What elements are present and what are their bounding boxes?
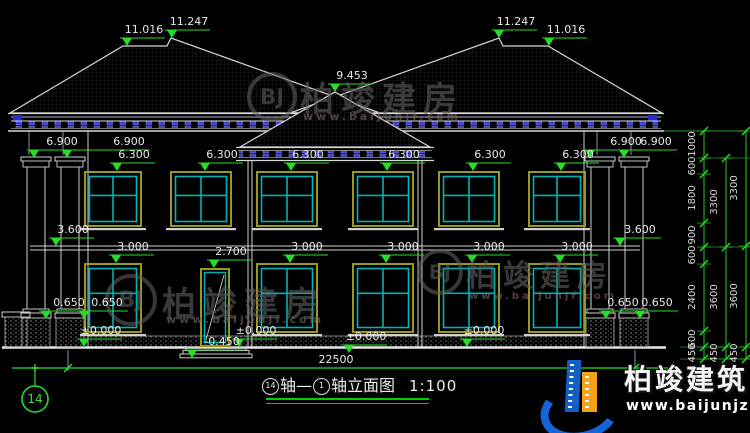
total-width-dimension: 22500: [319, 353, 354, 366]
title-underline-2: [266, 403, 429, 405]
elevation-label: 11.247: [170, 16, 209, 28]
chain-dim-label: 3600: [730, 283, 740, 308]
pilaster: [55, 157, 85, 347]
elevation-label: 11.247: [497, 16, 536, 28]
chain-dim-label: 1000: [688, 131, 698, 156]
window: [252, 172, 322, 230]
brand-logo: 柏竣建筑 www.baijunjz.com: [538, 358, 750, 430]
elevation-label: 3.000: [291, 241, 323, 253]
window: [434, 172, 504, 230]
title-axis-end-bubble: 1: [313, 378, 330, 395]
title-text-suffix: 轴立面图: [331, 377, 395, 395]
window: [524, 172, 590, 230]
title-axis-start-bubble: 14: [262, 378, 279, 395]
window-sill: [434, 228, 504, 230]
elevation-label: 0.650: [607, 297, 639, 309]
elevation-label: 3.600: [624, 224, 656, 236]
elevation-label: 3.000: [561, 241, 593, 253]
elevation-label: 6.300: [118, 149, 150, 161]
elevation-label: 6.300: [562, 149, 594, 161]
elevation-label: ±0.000: [81, 325, 122, 337]
brand-url: www.baijunjz.com: [626, 398, 750, 414]
elevation-label: 0.650: [91, 297, 123, 309]
windows-and-door: [80, 172, 590, 346]
elevation-label: 3.000: [473, 241, 505, 253]
window: [348, 264, 418, 336]
drawing-title: 14轴—1轴立面图1:100: [261, 377, 457, 395]
window: [80, 172, 146, 230]
fence-post-left: [2, 312, 30, 347]
cad-elevation-drawing: BJ柏竣建房www.baijunjf.comBJ柏竣建房www.baijunjf…: [0, 0, 750, 433]
chain-dim-label: 2400: [688, 284, 698, 309]
elevation-label: 6.300: [474, 149, 506, 161]
elevation-label: 6.300: [388, 149, 420, 161]
elevation-label: 3.000: [117, 241, 149, 253]
elevation-label: 9.453: [336, 70, 368, 82]
elevation-label: ±0.000: [464, 325, 505, 337]
brand-tower-blue-icon: [565, 360, 582, 412]
elevation-label: 11.016: [547, 24, 586, 36]
gutter-end-left: [13, 115, 22, 121]
window-sill: [166, 228, 236, 230]
elevation-label: 6.900: [610, 136, 642, 148]
window-sill: [524, 334, 590, 336]
window-sill: [80, 228, 146, 230]
elevation-label: 0.650: [641, 297, 673, 309]
chain-dim-label: 3300: [730, 175, 740, 200]
window: [348, 172, 418, 230]
chain-dim-label: 3300: [710, 189, 720, 214]
title-text-mid: 轴—: [280, 377, 312, 395]
elevation-label: 6.300: [292, 149, 324, 161]
window: [524, 264, 590, 336]
elevation-label: 3.600: [57, 224, 89, 236]
elevation-label: 11.016: [125, 24, 164, 36]
elevation-label: 2.700: [215, 246, 247, 258]
chain-dim-label: 600: [688, 156, 698, 175]
elevation-label: -0.450: [204, 336, 239, 348]
dimension-chains: [697, 127, 750, 363]
elevation-label: 6.900: [640, 136, 672, 148]
pilasters: [21, 157, 649, 347]
elevation-label: 6.900: [113, 136, 145, 148]
gutter-end-right: [648, 115, 657, 121]
window-sill: [348, 228, 418, 230]
elevation-label: 0.650: [53, 297, 85, 309]
title-scale: 1:100: [409, 377, 457, 395]
elevation-label: 6.900: [46, 136, 78, 148]
plinth-band: [88, 336, 584, 347]
brand-tower-orange-icon: [582, 372, 597, 412]
window: [166, 172, 236, 230]
elevation-label: 6.300: [206, 149, 238, 161]
chain-dim-label: 900: [688, 225, 698, 244]
title-underline-1: [266, 398, 429, 400]
axis-bubble-label: 14: [27, 392, 42, 406]
chain-dim-label: 600: [688, 245, 698, 264]
chain-dim-label: 1800: [688, 185, 698, 210]
chain-dim-label: 3600: [710, 284, 720, 309]
elevation-label: ±0.000: [236, 325, 277, 337]
brand-name: 柏竣建筑: [624, 358, 748, 398]
window-sill: [252, 228, 322, 230]
window-sill: [524, 228, 590, 230]
elevation-label: 3.000: [387, 241, 419, 253]
pilaster: [619, 157, 649, 347]
elevation-label: ±0.000: [346, 331, 387, 343]
